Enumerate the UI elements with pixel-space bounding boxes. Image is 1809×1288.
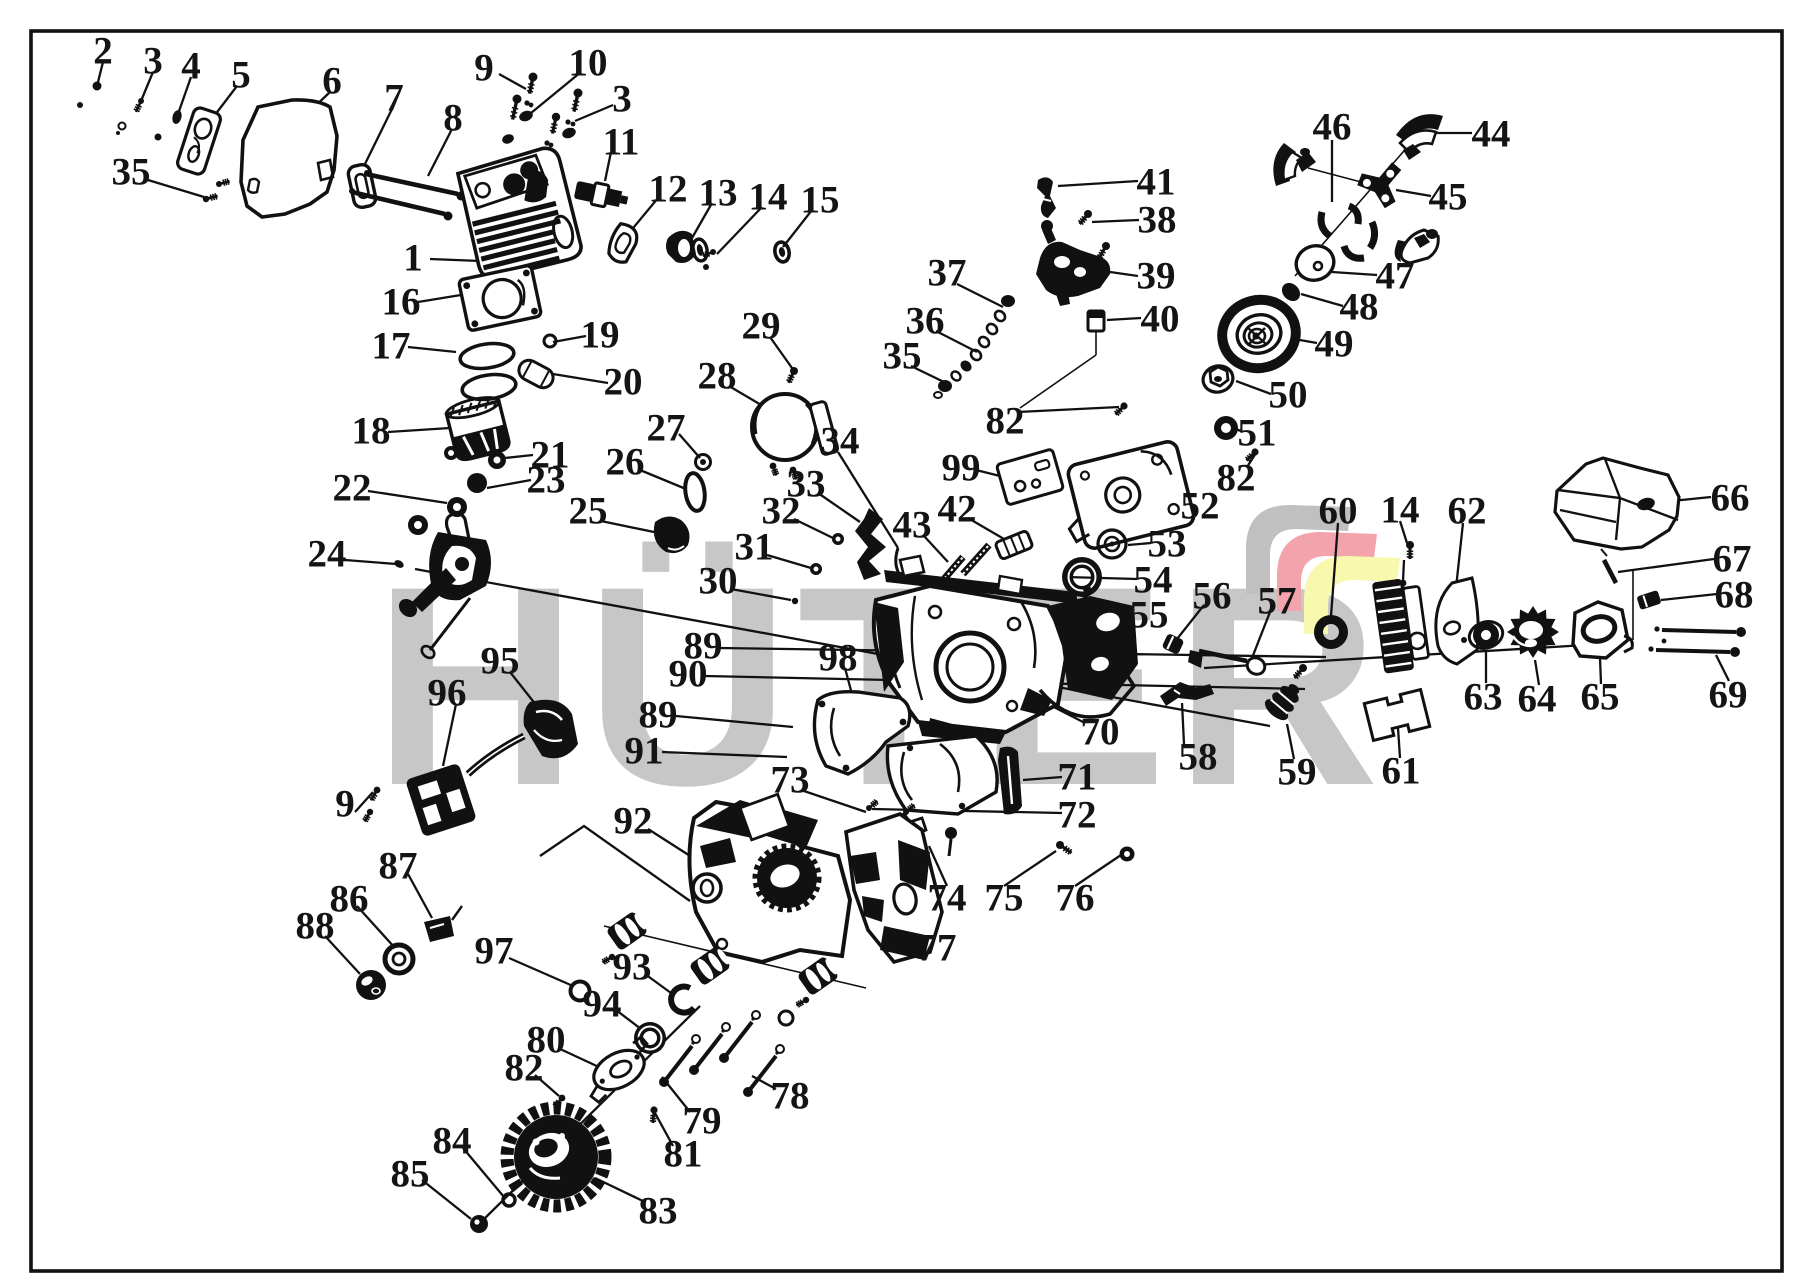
svg-text:77: 77 [918,926,957,969]
svg-text:47: 47 [1376,254,1415,297]
svg-text:35: 35 [883,334,922,377]
svg-text:59: 59 [1278,750,1317,793]
svg-text:43: 43 [893,503,932,546]
svg-text:27: 27 [647,406,686,449]
svg-text:97: 97 [475,929,514,972]
svg-text:12: 12 [649,167,688,210]
svg-text:66: 66 [1711,476,1750,519]
svg-text:14: 14 [1381,488,1420,531]
svg-text:74: 74 [928,876,967,919]
svg-text:86: 86 [330,877,369,920]
svg-text:95: 95 [481,639,520,682]
svg-text:64: 64 [1518,677,1557,720]
svg-text:87: 87 [379,844,418,887]
svg-text:17: 17 [372,324,411,367]
svg-text:63: 63 [1464,675,1503,718]
svg-text:7: 7 [384,76,404,119]
svg-text:5: 5 [231,53,251,96]
svg-text:23: 23 [527,458,566,501]
svg-text:8: 8 [443,96,463,139]
svg-text:82: 82 [505,1046,544,1089]
svg-text:2: 2 [93,29,113,72]
svg-text:81: 81 [664,1132,703,1175]
svg-text:35: 35 [112,150,151,193]
svg-text:15: 15 [801,178,840,221]
svg-text:49: 49 [1315,322,1354,365]
svg-text:39: 39 [1137,254,1176,297]
svg-text:69: 69 [1709,673,1748,716]
svg-text:4: 4 [181,44,201,87]
svg-text:71: 71 [1058,755,1097,798]
svg-text:19: 19 [581,313,620,356]
svg-text:83: 83 [639,1189,678,1232]
svg-text:38: 38 [1138,198,1177,241]
svg-text:30: 30 [699,559,738,602]
svg-text:20: 20 [604,360,643,403]
svg-text:13: 13 [699,171,738,214]
svg-text:62: 62 [1448,489,1487,532]
svg-text:70: 70 [1081,710,1120,753]
svg-text:3: 3 [612,77,632,120]
svg-text:98: 98 [819,636,858,679]
svg-text:73: 73 [771,758,810,801]
svg-text:9: 9 [335,782,355,825]
svg-text:91: 91 [625,729,664,772]
svg-text:16: 16 [382,280,421,323]
svg-text:18: 18 [352,409,391,452]
svg-text:88: 88 [296,904,335,947]
svg-text:56: 56 [1193,574,1232,617]
svg-text:42: 42 [938,487,977,530]
svg-text:55: 55 [1130,593,1169,636]
svg-text:11: 11 [603,120,640,163]
svg-text:41: 41 [1137,160,1176,203]
svg-text:72: 72 [1058,793,1097,836]
svg-text:75: 75 [985,876,1024,919]
svg-text:1: 1 [403,236,423,279]
svg-text:60: 60 [1319,489,1358,532]
svg-text:99: 99 [942,446,981,489]
svg-text:92: 92 [614,799,653,842]
svg-text:44: 44 [1472,112,1511,155]
svg-text:26: 26 [606,440,645,483]
svg-text:84: 84 [433,1119,472,1162]
svg-text:3: 3 [143,39,163,82]
svg-text:82: 82 [1217,456,1256,499]
svg-text:31: 31 [735,525,774,568]
svg-text:45: 45 [1429,175,1468,218]
svg-text:85: 85 [391,1152,430,1195]
svg-text:90: 90 [669,652,708,695]
svg-text:76: 76 [1056,876,1095,919]
svg-text:61: 61 [1382,749,1421,792]
svg-text:29: 29 [742,304,781,347]
svg-text:10: 10 [569,41,608,84]
svg-text:52: 52 [1181,484,1220,527]
svg-text:50: 50 [1269,373,1308,416]
svg-text:24: 24 [308,532,347,575]
svg-text:28: 28 [698,354,737,397]
svg-text:57: 57 [1258,579,1297,622]
svg-text:68: 68 [1715,573,1754,616]
svg-text:94: 94 [583,982,622,1025]
svg-text:46: 46 [1313,105,1352,148]
svg-text:14: 14 [749,175,788,218]
svg-text:6: 6 [322,59,342,102]
svg-text:78: 78 [771,1074,810,1117]
svg-text:40: 40 [1141,297,1180,340]
svg-text:65: 65 [1581,675,1620,718]
svg-text:51: 51 [1238,411,1277,454]
svg-text:22: 22 [333,466,372,509]
svg-text:34: 34 [821,419,860,462]
svg-text:82: 82 [986,399,1025,442]
svg-text:9: 9 [474,46,494,89]
svg-text:96: 96 [428,671,467,714]
svg-text:25: 25 [569,489,608,532]
svg-text:37: 37 [928,251,967,294]
svg-text:58: 58 [1179,735,1218,778]
